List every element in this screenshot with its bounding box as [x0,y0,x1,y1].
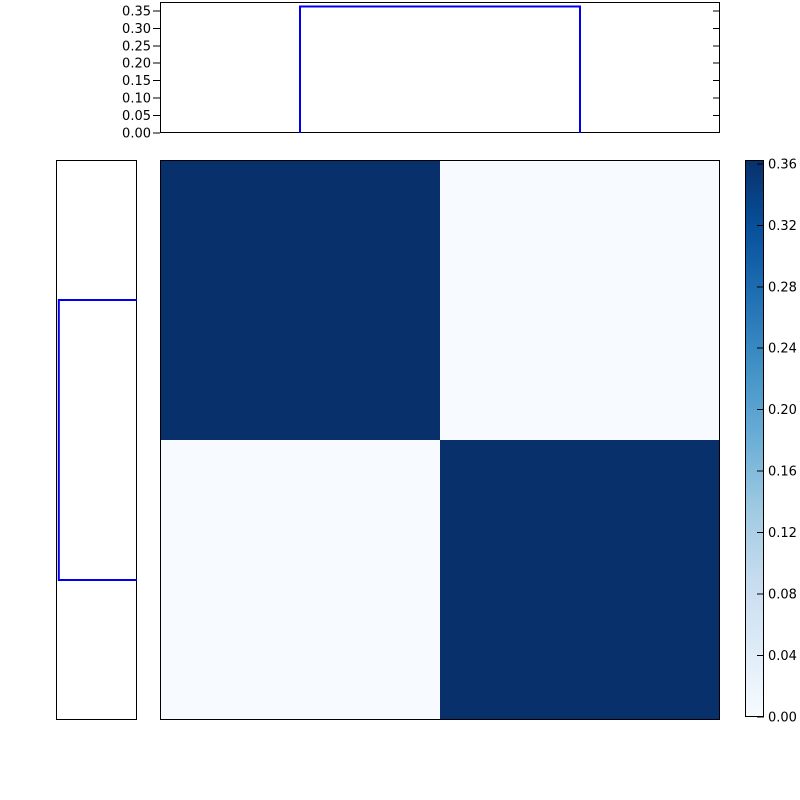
top-panel-ytick-label: 0.20 [122,57,151,72]
top-panel-ytick-label: 0.10 [122,92,151,107]
figure-canvas: 0.350.300.250.200.150.100.050.000.360.32… [0,0,800,800]
colorbar-tick-label: 0.12 [768,526,797,541]
left-marginal-frame [57,161,137,720]
heatmap-cell-r0c0 [160,160,440,440]
colorbar-tick-label: 0.28 [768,280,797,295]
colorbar-tick-label: 0.00 [768,711,797,726]
colorbar-gradient [745,160,764,717]
top-panel-ytick-label: 0.25 [122,39,151,54]
heatmap-cell-r1c0 [160,440,440,720]
colorbar-tick-label: 0.32 [768,219,797,234]
top-panel-ytick-label: 0.15 [122,74,151,89]
colorbar-tick-label: 0.20 [768,403,797,418]
colorbar-tick-label: 0.36 [768,157,797,172]
colorbar-tick-label: 0.24 [768,342,797,357]
left-marginal-step-line [59,300,137,580]
top-marginal-step-line [300,7,580,133]
colorbar-tick-label: 0.16 [768,465,797,480]
colorbar-tick-label: 0.04 [768,649,797,664]
heatmap-cell-r0c1 [440,160,720,440]
colorbar-tick-label: 0.08 [768,588,797,603]
top-panel-ytick-label: 0.00 [122,127,151,142]
top-panel-ytick-label: 0.35 [122,4,151,19]
top-panel-ytick-label: 0.05 [122,109,151,124]
top-marginal-frame [161,3,720,133]
top-panel-ytick-label: 0.30 [122,22,151,37]
joint-distribution-figure: 0.350.300.250.200.150.100.050.000.360.32… [0,0,800,800]
heatmap-cell-r1c1 [440,440,720,720]
